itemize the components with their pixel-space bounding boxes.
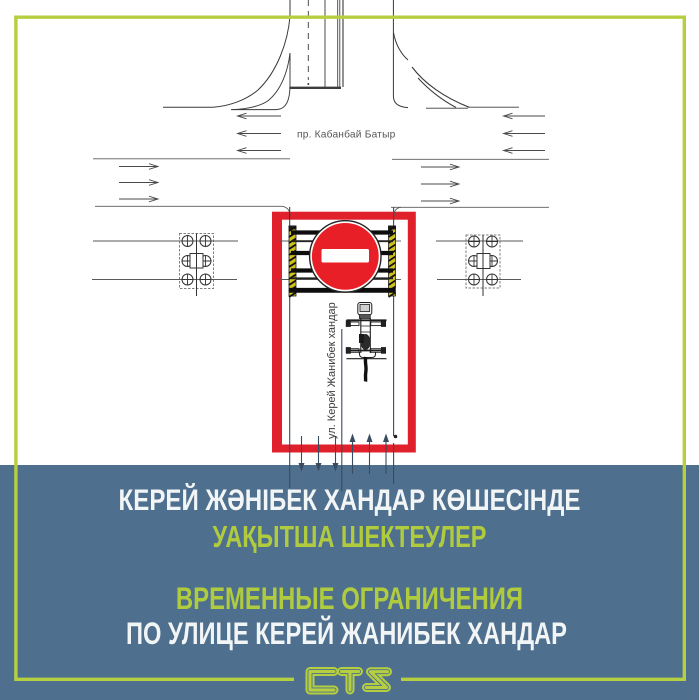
- svg-text:пр. Кабанбай Батыр: пр. Кабанбай Батыр: [297, 129, 396, 141]
- svg-text:ул. Керей Жанибек хандар: ул. Керей Жанибек хандар: [326, 302, 338, 439]
